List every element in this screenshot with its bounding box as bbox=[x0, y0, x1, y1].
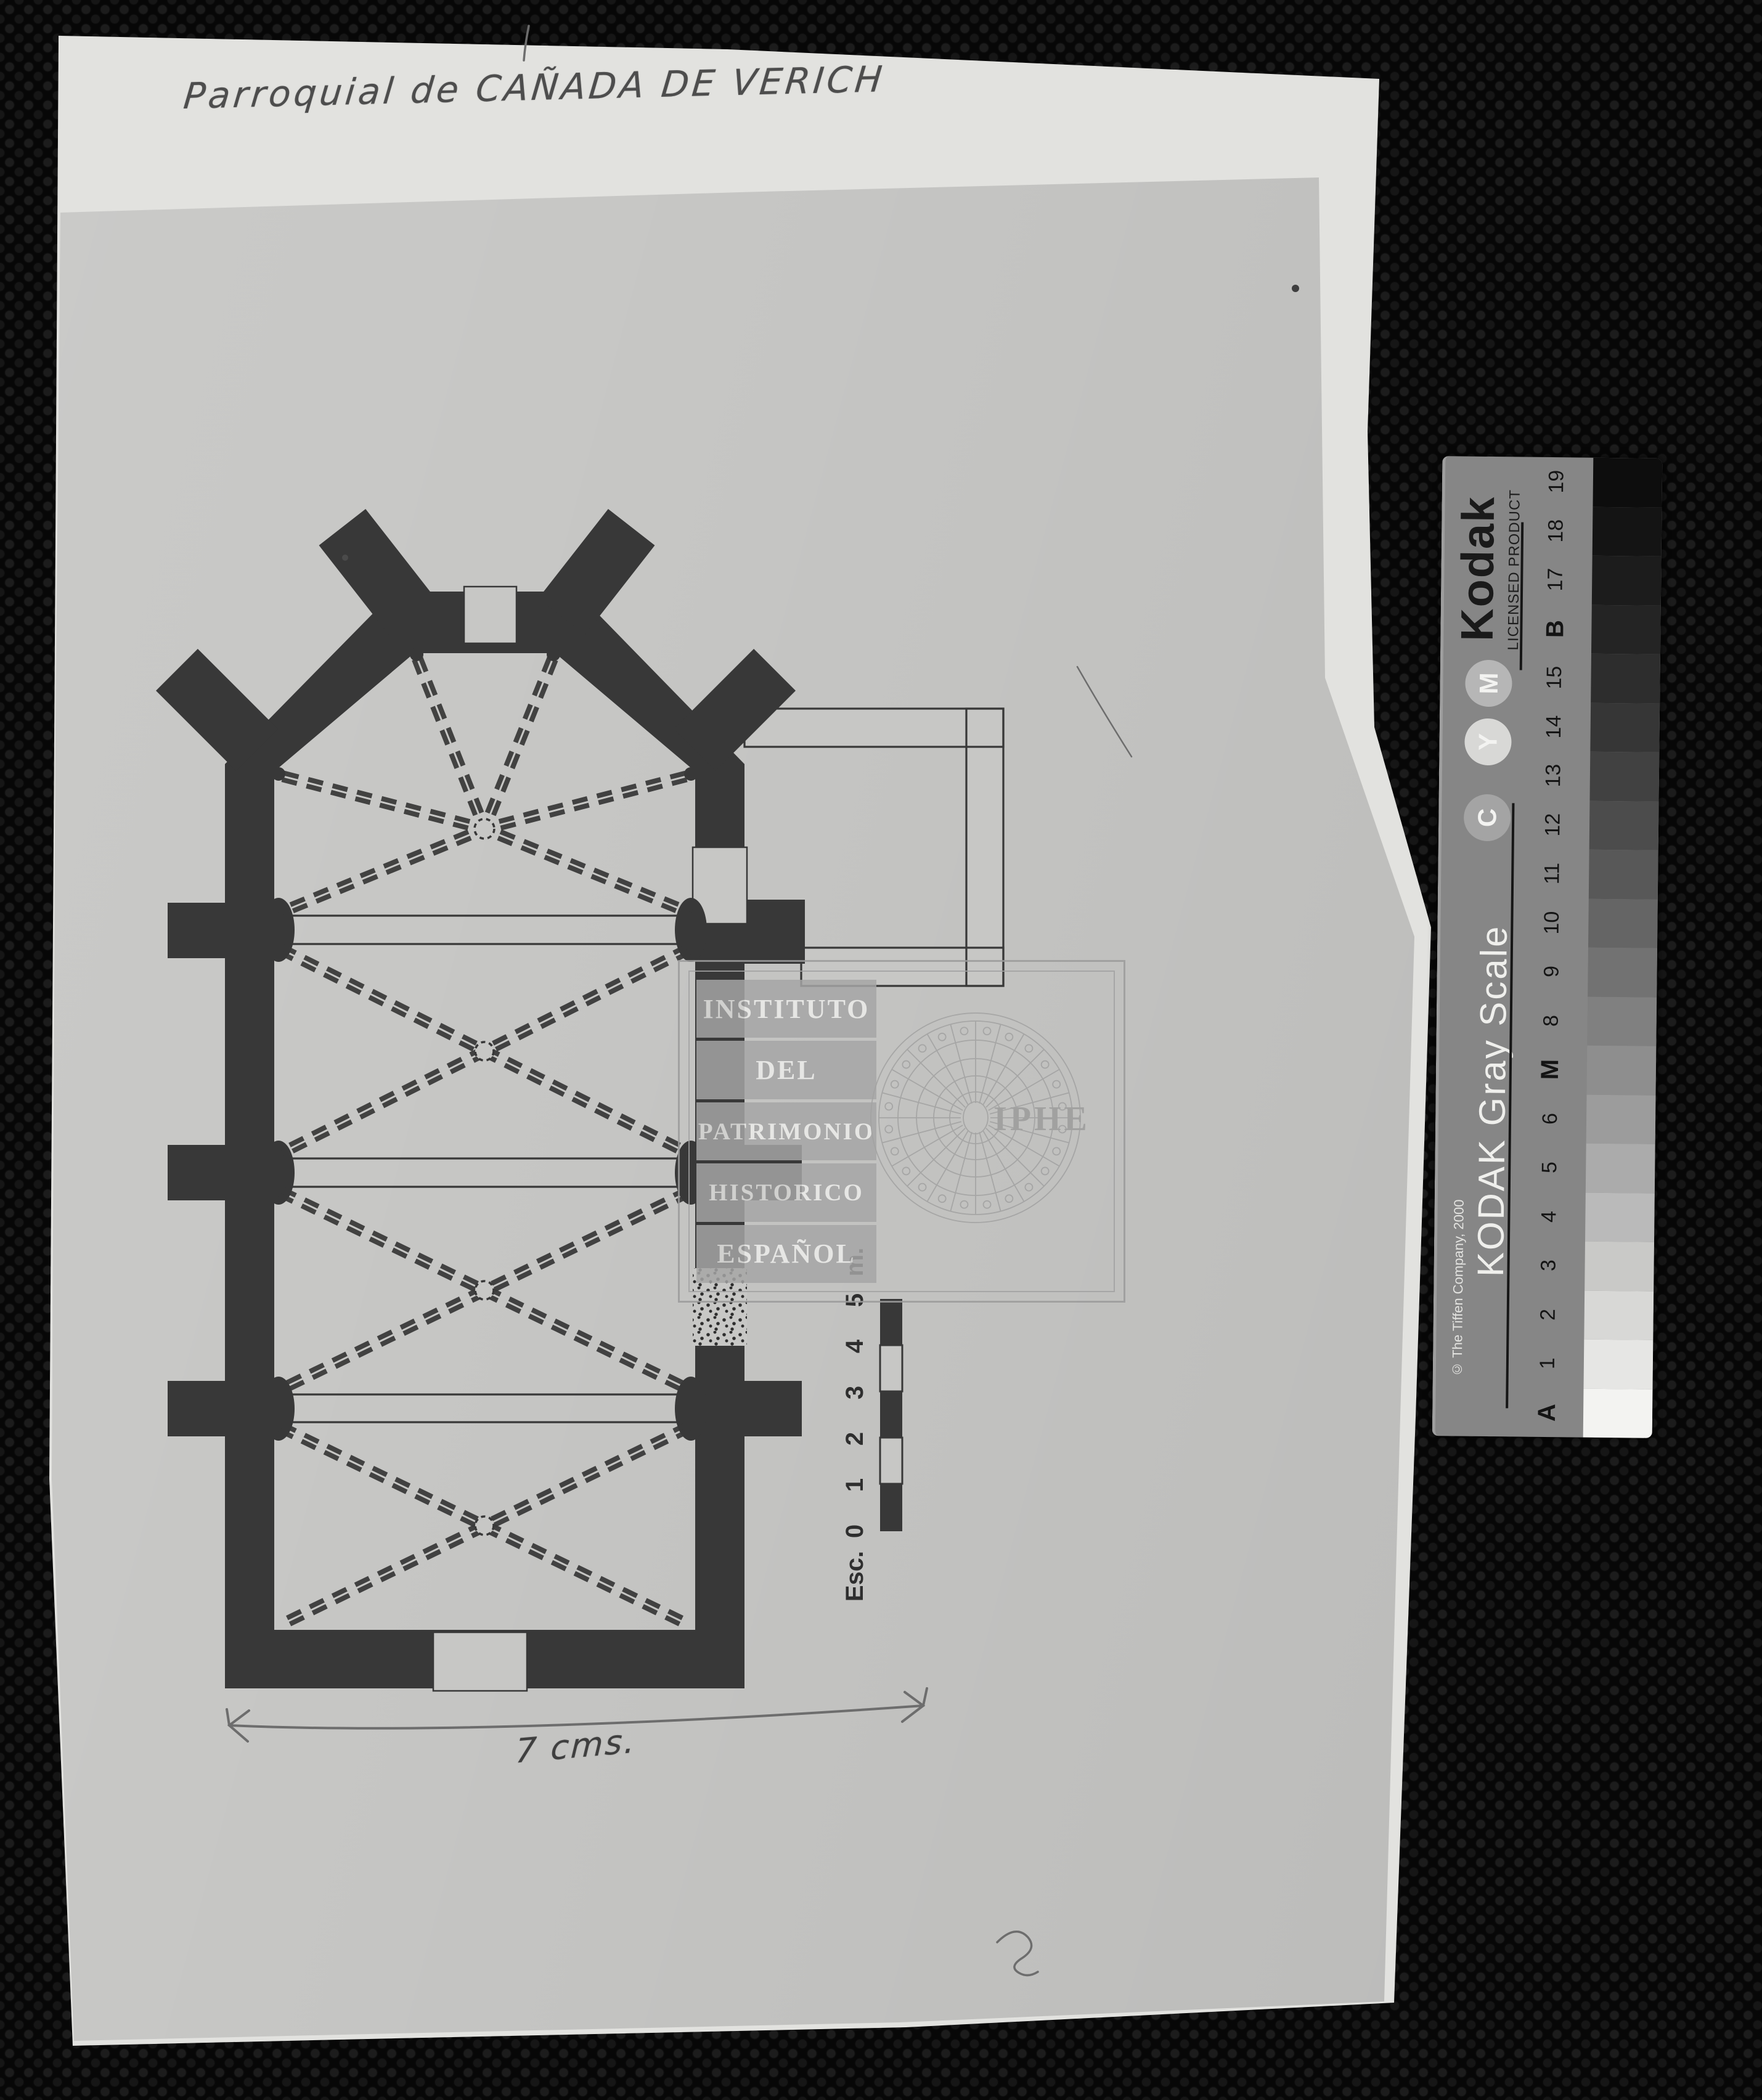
gray-patch-label-15: 15 bbox=[1518, 653, 1591, 702]
y-patch-circle: Y bbox=[1464, 718, 1512, 766]
gray-patch-label-10: 10 bbox=[1515, 898, 1589, 948]
gray-patch-12 bbox=[1589, 800, 1659, 850]
stamp-acronym: IPHE bbox=[993, 1099, 1090, 1139]
gray-patch-label-5: 5 bbox=[1513, 1142, 1586, 1192]
gray-patch-B bbox=[1591, 604, 1661, 654]
gray-patch-10 bbox=[1588, 898, 1658, 948]
gray-patch-15 bbox=[1591, 654, 1660, 704]
m-patch-circle: M bbox=[1465, 660, 1512, 707]
gray-patch-label-M: M bbox=[1514, 1044, 1588, 1094]
gray-patch-8 bbox=[1587, 996, 1657, 1046]
gray-patch-5 bbox=[1586, 1144, 1655, 1194]
gray-patch-2 bbox=[1584, 1290, 1654, 1340]
gray-patch-14 bbox=[1590, 702, 1660, 752]
gray-patch-19 bbox=[1593, 458, 1662, 508]
gray-patch-label-3: 3 bbox=[1512, 1240, 1585, 1290]
gray-patch-label-1: 1 bbox=[1511, 1338, 1585, 1388]
gray-patch-label-9: 9 bbox=[1515, 946, 1588, 996]
gray-patch-17 bbox=[1592, 556, 1662, 606]
gray-patch-4 bbox=[1585, 1192, 1655, 1242]
gray-patch-label-A: A bbox=[1511, 1388, 1584, 1438]
gray-patch-label-18: 18 bbox=[1520, 506, 1593, 556]
gray-patch-13 bbox=[1589, 752, 1659, 802]
c-patch-circle: C bbox=[1464, 794, 1511, 842]
gray-patch-11 bbox=[1589, 850, 1658, 900]
gray-patch-label-11: 11 bbox=[1516, 849, 1589, 898]
gray-patch-M bbox=[1586, 1046, 1656, 1096]
gray-patch-label-6: 6 bbox=[1514, 1094, 1587, 1144]
tiffen-copyright: © The Tiffen Company, 2000 bbox=[1448, 1165, 1469, 1411]
gray-patch-18 bbox=[1593, 507, 1662, 556]
gray-patch-A bbox=[1583, 1388, 1653, 1438]
gray-patch-3 bbox=[1585, 1242, 1654, 1292]
iphe-stamp: INSTITUTO DEL PATRIMONIO HISTORICO ESPAÑ… bbox=[678, 960, 1125, 1303]
gray-patch-label-B: B bbox=[1519, 604, 1592, 654]
gray-patch-label-8: 8 bbox=[1514, 996, 1588, 1046]
gray-patch-label-13: 13 bbox=[1517, 751, 1591, 800]
gray-patch-label-17: 17 bbox=[1519, 555, 1593, 604]
gray-patch-label-12: 12 bbox=[1517, 800, 1590, 850]
gray-patch-9 bbox=[1588, 948, 1657, 998]
gray-patch-1 bbox=[1584, 1340, 1654, 1390]
gray-patch-label-14: 14 bbox=[1517, 702, 1591, 752]
gray-patch-label-2: 2 bbox=[1511, 1290, 1585, 1340]
kodak-gray-scale-strip: A123456M89101112131415B171819 Kodak LICE… bbox=[1432, 456, 1663, 1438]
gray-patch-label-19: 19 bbox=[1520, 457, 1593, 507]
scanner-bed: Parroquial de CAÑADA DE VERICH bbox=[0, 0, 1762, 2100]
gray-patch-label-4: 4 bbox=[1512, 1192, 1586, 1242]
gray-patch-6 bbox=[1586, 1094, 1656, 1144]
kodak-patch-column bbox=[1583, 458, 1663, 1438]
kodak-logo: Kodak bbox=[1451, 465, 1505, 672]
